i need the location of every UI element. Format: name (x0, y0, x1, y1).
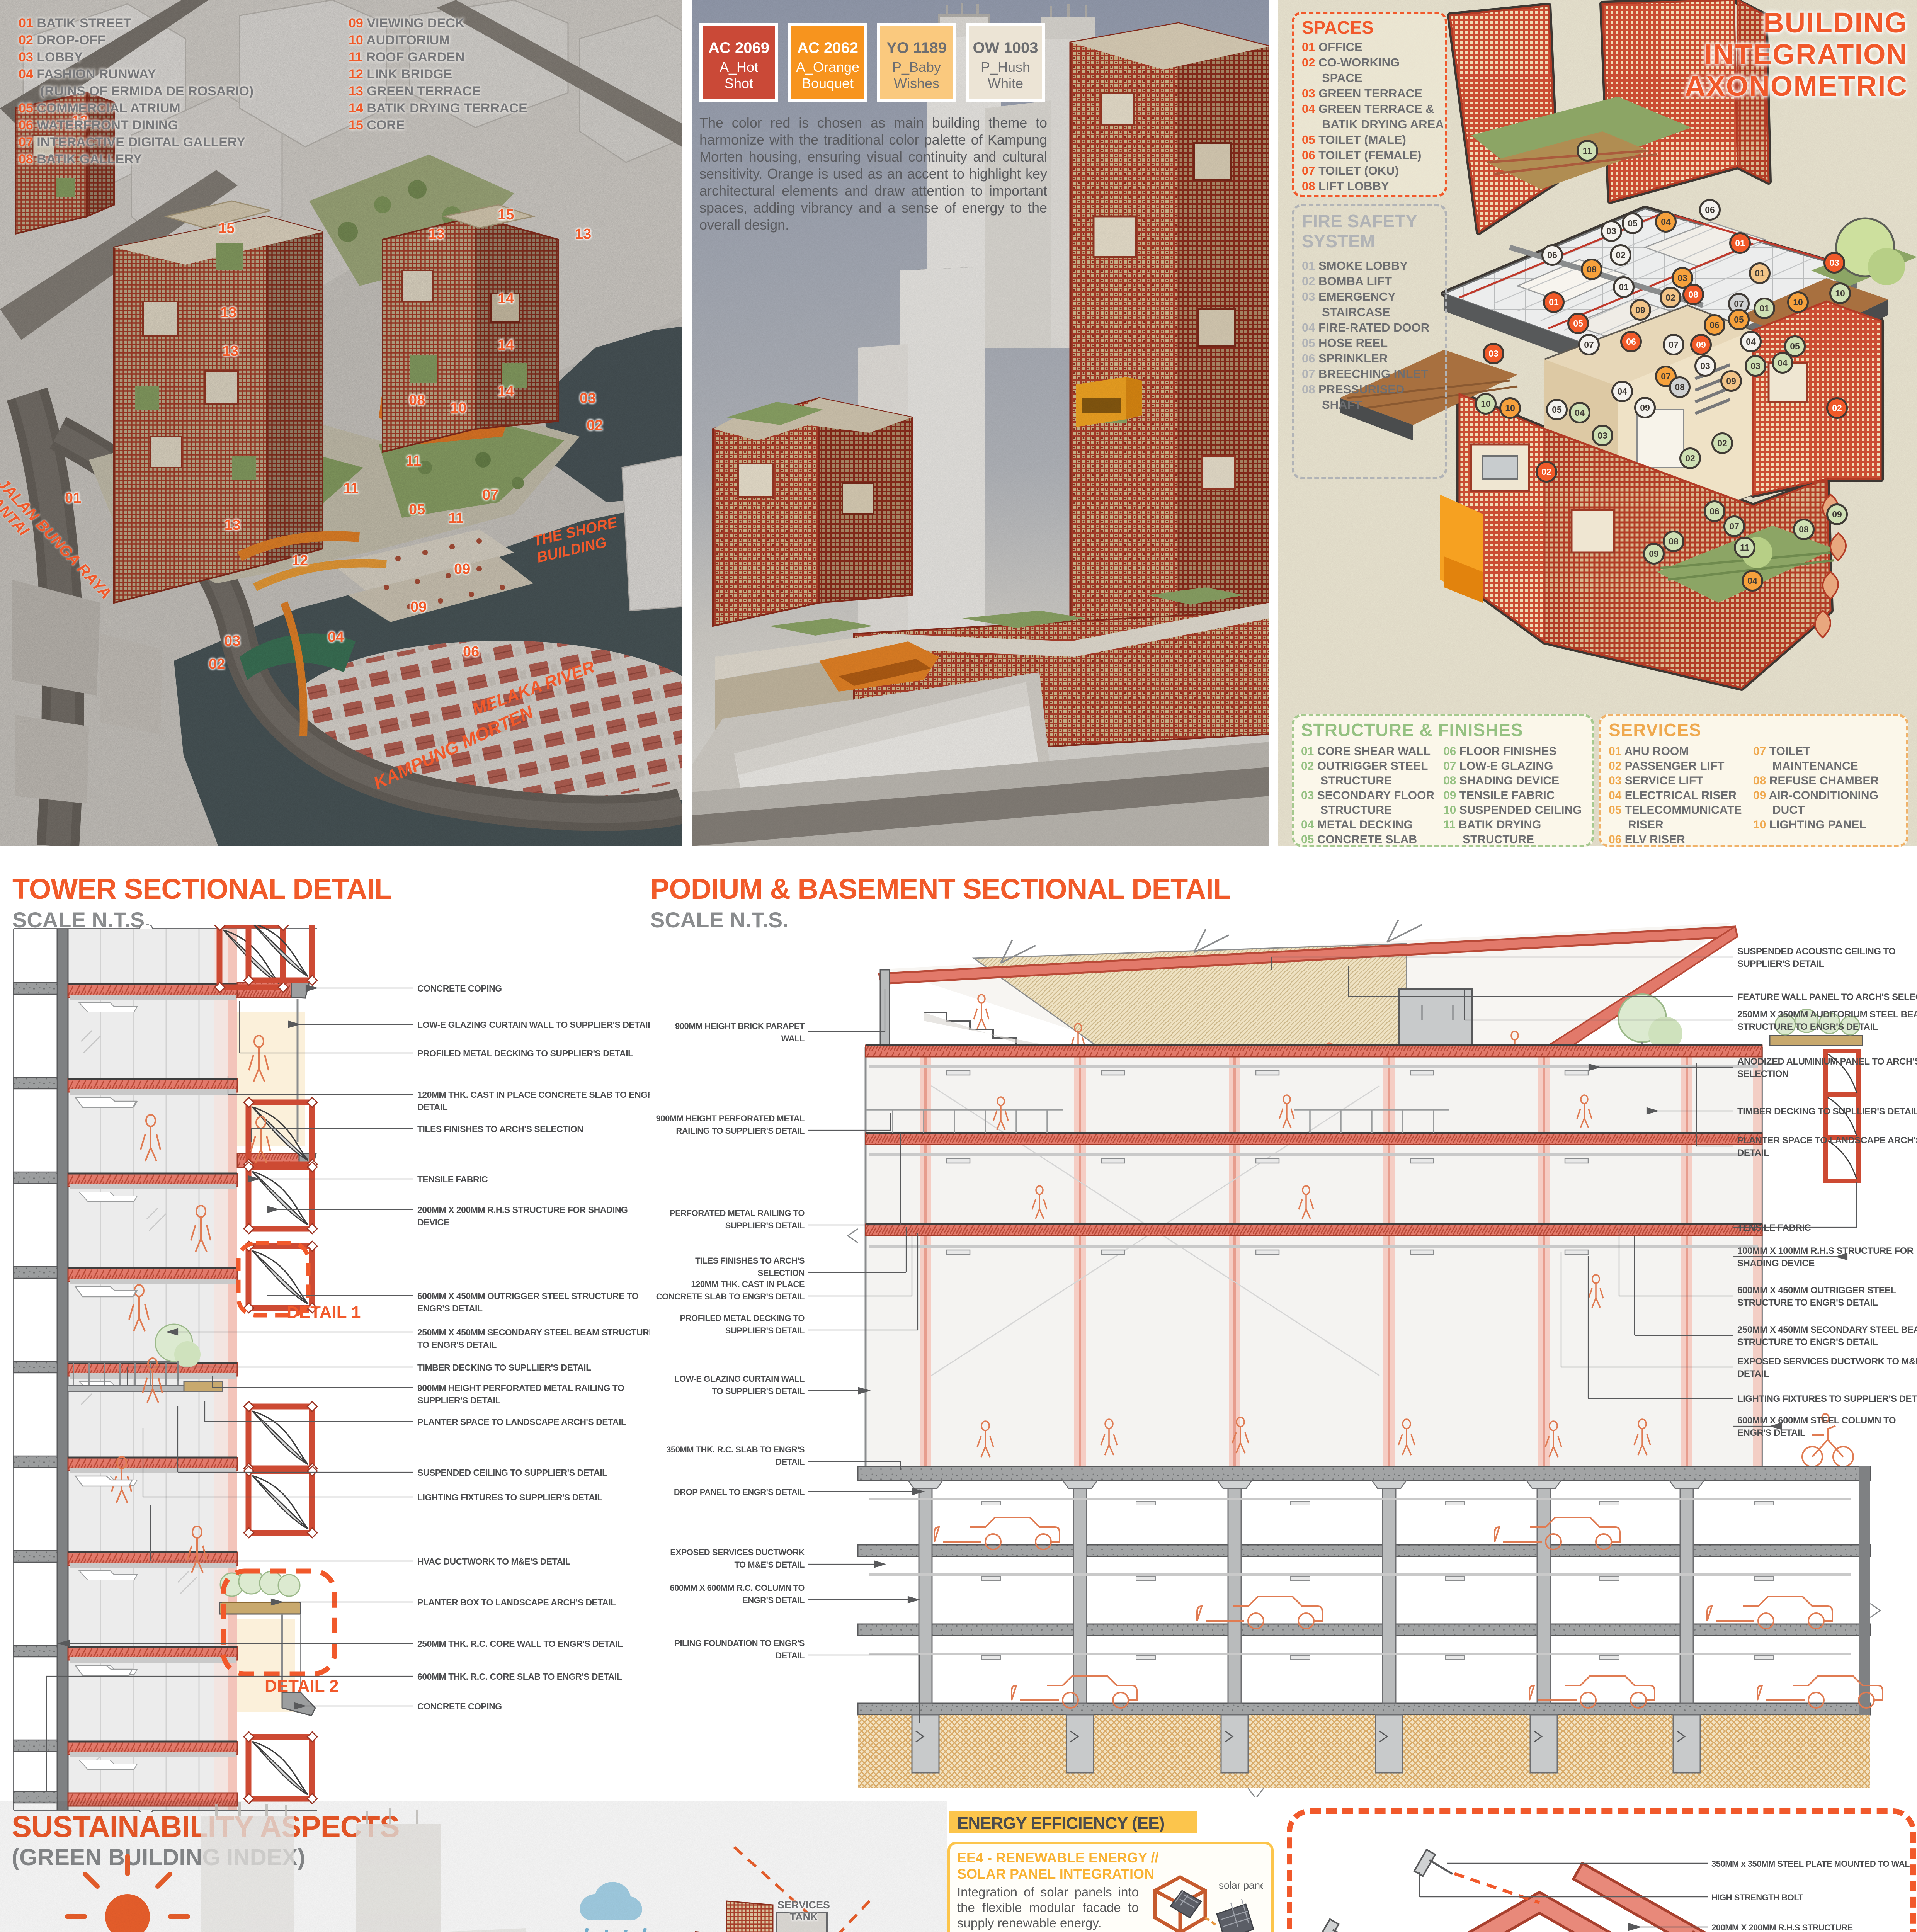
svg-text:SUPPLIER'S DETAIL: SUPPLIER'S DETAIL (417, 1395, 501, 1405)
svg-text:TIMBER DECKING TO SUPLLIER'S D: TIMBER DECKING TO SUPLLIER'S DETAIL (417, 1362, 591, 1372)
svg-text:TO SUPPLIER'S DETAIL: TO SUPPLIER'S DETAIL (712, 1386, 805, 1396)
svg-text:DETAIL: DETAIL (776, 1651, 805, 1660)
svg-text:120MM THK. CAST IN PLACE: 120MM THK. CAST IN PLACE (691, 1279, 805, 1289)
svg-text:ENGR'S DETAIL: ENGR'S DETAIL (417, 1303, 483, 1313)
svg-text:TO M&E'S DETAIL: TO M&E'S DETAIL (735, 1560, 805, 1570)
svg-text:SHADING DEVICE: SHADING DEVICE (1737, 1258, 1815, 1269)
svg-text:PLANTER BOX TO LANDSCAPE ARCH': PLANTER BOX TO LANDSCAPE ARCH'S DETAIL (417, 1597, 616, 1607)
svg-text:600MM X 600MM STEEL COLUMN TO: 600MM X 600MM STEEL COLUMN TO (1737, 1415, 1896, 1426)
svg-text:ENGR'S DETAIL: ENGR'S DETAIL (1737, 1428, 1805, 1438)
svg-text:DETAIL: DETAIL (417, 1102, 448, 1112)
svg-text:PLANTER SPACE TO LANDSCAPE ARC: PLANTER SPACE TO LANDSCAPE ARCH'S DETAIL (417, 1417, 626, 1427)
svg-text:PROFILED METAL DECKING TO: PROFILED METAL DECKING TO (680, 1313, 805, 1323)
svg-text:SUSPENDED CEILING TO SUPPLIER': SUSPENDED CEILING TO SUPPLIER'S DETAIL (417, 1468, 607, 1478)
svg-text:WALL: WALL (781, 1034, 805, 1043)
svg-text:SUPPLIER'S DETAIL: SUPPLIER'S DETAIL (725, 1221, 805, 1230)
svg-text:CONCRETE SLAB TO ENGR'S DETAIL: CONCRETE SLAB TO ENGR'S DETAIL (656, 1292, 805, 1301)
svg-text:PERFORATED METAL RAILING TO: PERFORATED METAL RAILING TO (670, 1208, 805, 1218)
svg-text:TILES FINISHES TO ARCH'S SELEC: TILES FINISHES TO ARCH'S SELECTION (417, 1124, 583, 1134)
svg-text:SELECTION: SELECTION (758, 1268, 805, 1278)
svg-text:SUSPENDED ACOUSTIC CEILING TO: SUSPENDED ACOUSTIC CEILING TO (1737, 946, 1896, 957)
svg-text:SELECTION: SELECTION (1737, 1069, 1789, 1079)
svg-text:250MM X 450MM SECONDARY STEEL: 250MM X 450MM SECONDARY STEEL BEAM STRUC… (417, 1327, 650, 1337)
svg-text:600MM X 450MM OUTRIGGER STEEL: 600MM X 450MM OUTRIGGER STEEL STRUCTURE … (417, 1291, 638, 1301)
svg-text:DROP PANEL TO ENGR'S DETAIL: DROP PANEL TO ENGR'S DETAIL (674, 1487, 805, 1497)
svg-text:HVAC DUCTWORK TO M&E'S DETAIL: HVAC DUCTWORK TO M&E'S DETAIL (417, 1556, 570, 1566)
svg-text:DETAIL: DETAIL (1737, 1369, 1769, 1379)
svg-text:CONCRETE COPING: CONCRETE COPING (417, 1701, 502, 1711)
svg-text:RAILING TO SUPPLIER'S DETAIL: RAILING TO SUPPLIER'S DETAIL (676, 1126, 805, 1136)
svg-text:DETAIL 2: DETAIL 2 (265, 1677, 339, 1696)
svg-text:DETAIL: DETAIL (776, 1457, 805, 1467)
svg-text:250MM THK. R.C. CORE WALL TO E: 250MM THK. R.C. CORE WALL TO ENGR'S DETA… (417, 1639, 623, 1649)
svg-text:STRUCTURE TO ENGR'S DETAIL: STRUCTURE TO ENGR'S DETAIL (1737, 1022, 1878, 1032)
svg-text:CONCRETE COPING: CONCRETE COPING (417, 983, 502, 993)
svg-text:LIGHTING FIXTURES TO SUPPLIER': LIGHTING FIXTURES TO SUPPLIER'S DETAIL (417, 1492, 602, 1502)
svg-text:HIGH STRENGTH BOLT: HIGH STRENGTH BOLT (1711, 1893, 1804, 1902)
svg-text:600MM X 450MM OUTRIGGER STEEL: 600MM X 450MM OUTRIGGER STEEL (1737, 1285, 1896, 1296)
svg-text:LIGHTING FIXTURES TO SUPPLIER': LIGHTING FIXTURES TO SUPPLIER'S DETAIL (1737, 1394, 1917, 1404)
svg-text:TO ENGR'S DETAIL: TO ENGR'S DETAIL (417, 1340, 497, 1350)
svg-text:FEATURE WALL PANEL TO ARCH'S S: FEATURE WALL PANEL TO ARCH'S SELECTION (1737, 992, 1917, 1002)
svg-text:ENGR'S DETAIL: ENGR'S DETAIL (742, 1595, 805, 1605)
svg-text:TENSILE FABRIC: TENSILE FABRIC (417, 1174, 488, 1184)
svg-text:SUPPLIER'S DETAIL: SUPPLIER'S DETAIL (1737, 959, 1824, 969)
svg-text:STRUCTURE TO ENGR'S DETAIL: STRUCTURE TO ENGR'S DETAIL (1737, 1298, 1878, 1308)
svg-text:solar panel: solar panel (1219, 1879, 1263, 1891)
svg-text:120MM THK. CAST IN PLACE CONCR: 120MM THK. CAST IN PLACE CONCRETE SLAB T… (417, 1090, 650, 1100)
svg-text:LOW-E GLAZING CURTAIN WALL: LOW-E GLAZING CURTAIN WALL (674, 1374, 805, 1384)
svg-text:900MM HEIGHT PERFORATED METAL: 900MM HEIGHT PERFORATED METAL (656, 1114, 805, 1123)
svg-text:200MM X 200MM R.H.S STRUCTURE: 200MM X 200MM R.H.S STRUCTURE FOR SHADIN… (417, 1205, 628, 1215)
svg-text:EXPOSED SERVICES DUCTWORK: EXPOSED SERVICES DUCTWORK (670, 1548, 805, 1557)
svg-text:DEVICE: DEVICE (417, 1217, 449, 1227)
svg-text:STRUCTURE TO ENGR'S DETAIL: STRUCTURE TO ENGR'S DETAIL (1737, 1337, 1878, 1347)
svg-text:TIMBER DECKING TO SUPLLIER'S D: TIMBER DECKING TO SUPLLIER'S DETAIL (1737, 1106, 1917, 1117)
svg-text:350MM THK. R.C. SLAB TO ENGR'S: 350MM THK. R.C. SLAB TO ENGR'S (666, 1445, 805, 1454)
svg-text:350MM x 350MM STEEL PLATE MOUN: 350MM x 350MM STEEL PLATE MOUNTED TO WAL… (1711, 1859, 1910, 1869)
svg-text:900MM HEIGHT PERFORATED METAL: 900MM HEIGHT PERFORATED METAL RAILING TO (417, 1383, 624, 1393)
svg-text:LOW-E GLAZING CURTAIN WALL TO: LOW-E GLAZING CURTAIN WALL TO SUPPLIER'S… (417, 1020, 650, 1030)
svg-text:DETAIL 1: DETAIL 1 (287, 1303, 361, 1322)
svg-text:PLANTER SPACE TO LANDSCAPE ARC: PLANTER SPACE TO LANDSCAPE ARCH'S (1737, 1135, 1917, 1146)
svg-text:DETAIL: DETAIL (1737, 1148, 1769, 1158)
svg-text:ANODIZED ALUMINIUM PANEL TO AR: ANODIZED ALUMINIUM PANEL TO ARCH'S (1737, 1056, 1917, 1067)
svg-text:TILES FINISHES TO ARCH'S: TILES FINISHES TO ARCH'S (695, 1256, 805, 1265)
svg-text:600MM THK. R.C. CORE SLAB TO E: 600MM THK. R.C. CORE SLAB TO ENGR'S DETA… (417, 1672, 622, 1682)
svg-text:250MM X 350MM AUDITORIUM STEEL: 250MM X 350MM AUDITORIUM STEEL BEAM (1737, 1009, 1917, 1020)
svg-text:900MM HEIGHT BRICK PARAPET: 900MM HEIGHT BRICK PARAPET (675, 1021, 805, 1031)
svg-text:600MM X 600MM R.C. COLUMN TO: 600MM X 600MM R.C. COLUMN TO (670, 1583, 805, 1593)
svg-text:PILING FOUNDATION TO ENGR'S: PILING FOUNDATION TO ENGR'S (674, 1638, 805, 1648)
svg-text:250MM X 450MM SECONDARY STEEL: 250MM X 450MM SECONDARY STEEL BEAM (1737, 1325, 1917, 1335)
svg-text:SUPPLIER'S DETAIL: SUPPLIER'S DETAIL (725, 1326, 805, 1335)
svg-text:200MM X 200MM R.H.S STRUCTURE: 200MM X 200MM R.H.S STRUCTURE (1711, 1923, 1853, 1932)
svg-text:PROFILED METAL DECKING TO SUPP: PROFILED METAL DECKING TO SUPPLIER'S DET… (417, 1048, 633, 1058)
svg-text:100MM X 100MM R.H.S STRUCTURE: 100MM X 100MM R.H.S STRUCTURE FOR (1737, 1246, 1914, 1256)
svg-text:TENSILE FABRIC: TENSILE FABRIC (1737, 1223, 1811, 1233)
svg-text:EXPOSED SERVICES DUCTWORK TO M: EXPOSED SERVICES DUCTWORK TO M&E'S (1737, 1356, 1917, 1367)
